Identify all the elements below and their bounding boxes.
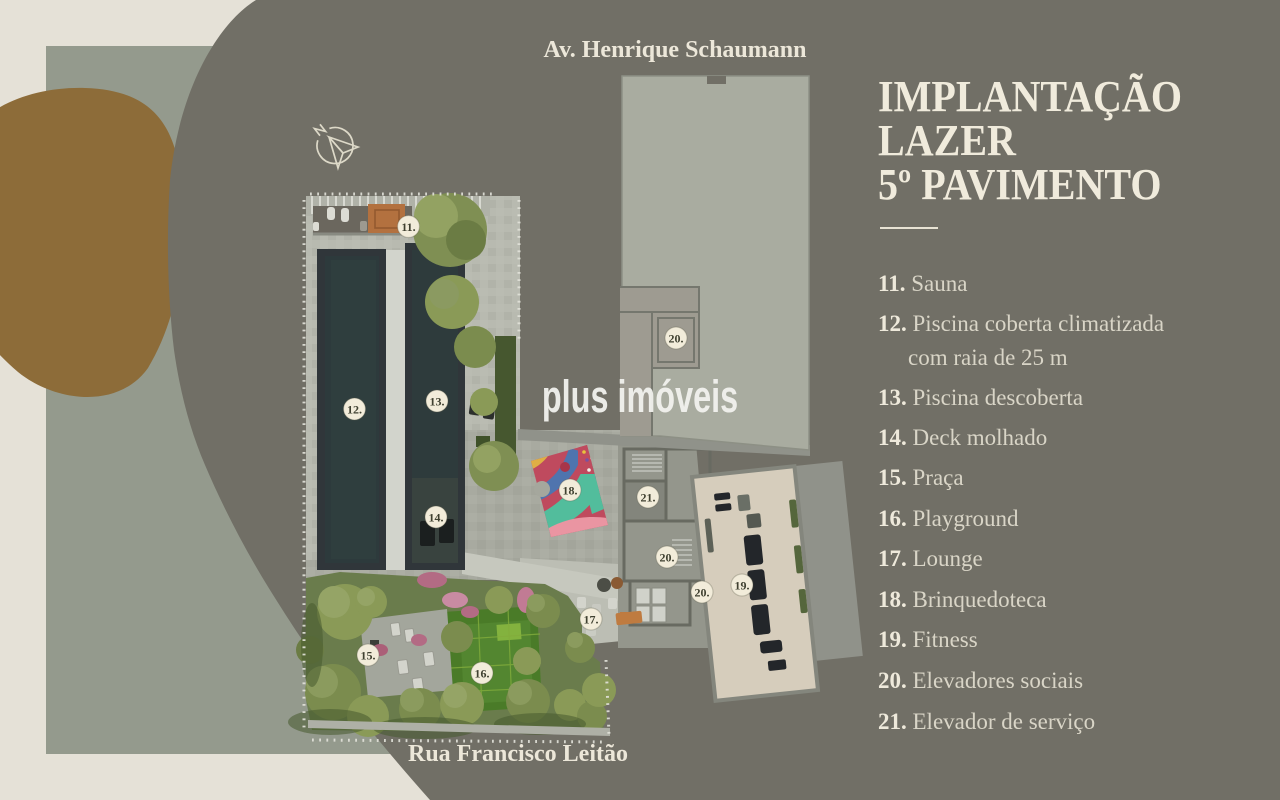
svg-text:15.: 15. [361, 649, 376, 663]
svg-text:11.: 11. [401, 220, 415, 234]
svg-text:21.: 21. [641, 491, 656, 505]
svg-text:14.: 14. [429, 511, 444, 525]
svg-text:19.: 19. [735, 579, 750, 593]
svg-text:20.: 20. [695, 586, 710, 600]
svg-text:16.: 16. [475, 667, 490, 681]
svg-text:20.: 20. [660, 551, 675, 565]
svg-text:17.: 17. [584, 613, 599, 627]
svg-text:20.: 20. [669, 332, 684, 346]
svg-text:18.: 18. [563, 484, 578, 498]
